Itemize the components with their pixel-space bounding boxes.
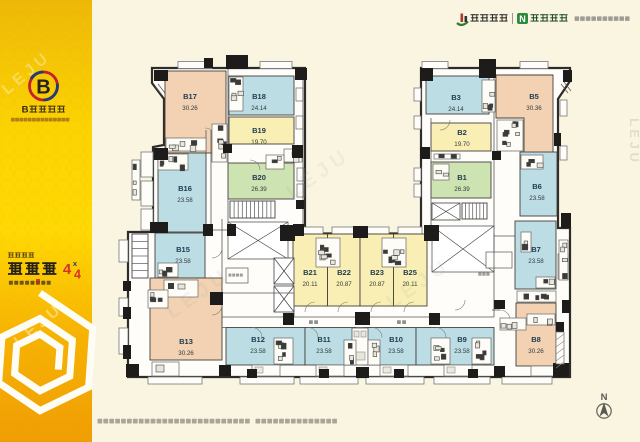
svg-text:23.58: 23.58 (250, 348, 266, 355)
svg-text:B10: B10 (389, 335, 403, 344)
svg-text:B7: B7 (531, 245, 541, 254)
svg-text:23.58: 23.58 (177, 197, 193, 204)
svg-text:B8: B8 (531, 335, 541, 344)
svg-text:19.70: 19.70 (454, 141, 470, 148)
svg-text:20.11: 20.11 (302, 281, 318, 288)
svg-text:N: N (601, 392, 608, 403)
svg-text:B15: B15 (176, 245, 190, 254)
svg-text:20.87: 20.87 (369, 281, 385, 288)
svg-text:B11: B11 (317, 335, 330, 344)
svg-text:B19: B19 (252, 126, 266, 135)
svg-text:B17: B17 (183, 92, 197, 101)
svg-text:30.36: 30.36 (526, 105, 542, 112)
svg-text:23.58: 23.58 (454, 348, 470, 355)
svg-text:30.26: 30.26 (178, 350, 194, 357)
svg-text:4: 4 (63, 261, 72, 278)
svg-text:B2: B2 (457, 128, 467, 137)
svg-text:24.14: 24.14 (448, 106, 464, 113)
svg-text:B6: B6 (532, 182, 542, 191)
svg-text:B18: B18 (252, 92, 266, 101)
svg-text:B3: B3 (451, 93, 461, 102)
svg-text:30.26: 30.26 (182, 105, 198, 112)
svg-text:23.58: 23.58 (528, 258, 544, 265)
svg-text:23.58: 23.58 (529, 195, 545, 202)
svg-text:24.14: 24.14 (251, 105, 267, 112)
svg-text:19.70: 19.70 (251, 139, 267, 146)
svg-text:B: B (36, 77, 50, 99)
svg-text:B16: B16 (178, 184, 192, 193)
svg-text:26.39: 26.39 (454, 186, 470, 193)
svg-text:B21: B21 (303, 268, 317, 277)
svg-text:B9: B9 (457, 335, 467, 344)
svg-text:B12: B12 (251, 335, 265, 344)
svg-text:B13: B13 (179, 337, 193, 346)
svg-text:23.58: 23.58 (388, 348, 404, 355)
svg-text:20.87: 20.87 (336, 281, 352, 288)
svg-text:B23: B23 (370, 268, 384, 277)
svg-text:4: 4 (74, 268, 81, 282)
svg-text:N: N (519, 14, 526, 24)
svg-text:B1: B1 (457, 173, 467, 182)
svg-text:B22: B22 (337, 268, 351, 277)
svg-text:30.26: 30.26 (528, 348, 544, 355)
svg-text:23.58: 23.58 (316, 348, 332, 355)
svg-text:26.39: 26.39 (251, 186, 267, 193)
svg-text:B: B (22, 105, 29, 116)
svg-text:B20: B20 (252, 173, 266, 182)
svg-text:L E J U: L E J U (627, 118, 640, 162)
svg-text:B5: B5 (529, 92, 539, 101)
